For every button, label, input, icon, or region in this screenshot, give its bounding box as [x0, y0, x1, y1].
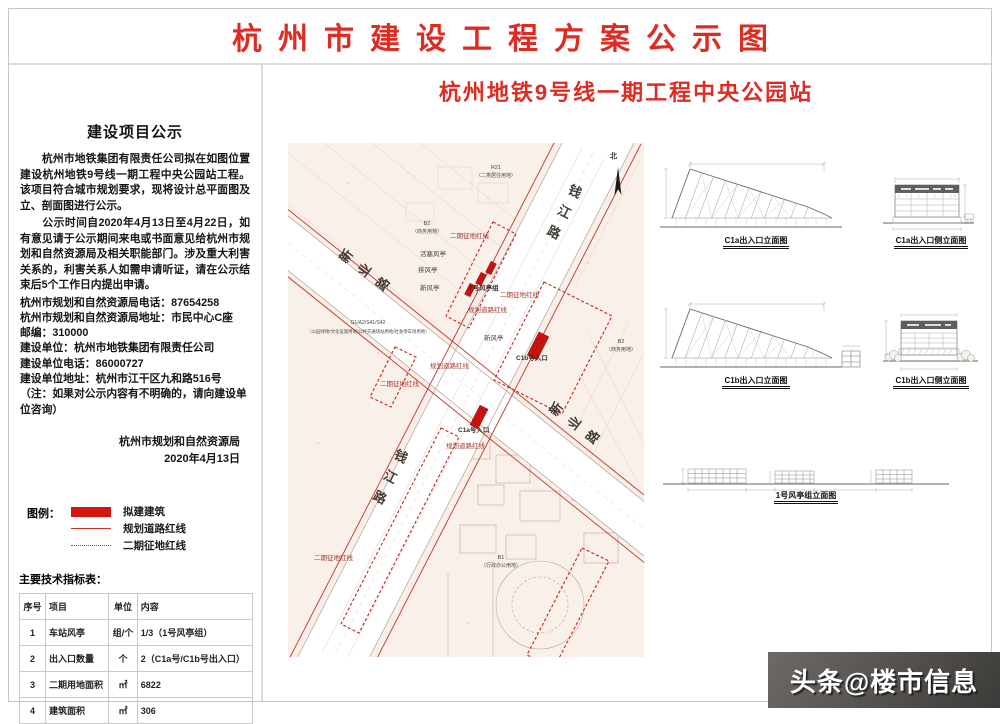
builder-line: 建设单位：杭州市地铁集团有限责任公司	[20, 341, 250, 356]
agency-name: 杭州市规划和自然资源局	[20, 434, 240, 451]
page-title: 杭州市建设工程方案公示图	[216, 14, 784, 58]
annotation-road-redline-1: 规划道路红线	[468, 307, 507, 314]
watermark-text: 头条@楼市信息	[790, 662, 978, 699]
legend-item-phase2-redline: 二期征地红线	[71, 537, 247, 554]
annotation-fresh-air-vent-1: 新风亭	[420, 285, 440, 292]
annotation-phase2-redline-2: 二期征地红线	[500, 292, 539, 299]
table-row: 2 出入口数量 个 2（C1a号/C1b号出入口）	[20, 646, 253, 672]
watermark: 头条@楼市信息	[768, 652, 1000, 708]
elevation-c1a-side	[881, 161, 981, 237]
parcel-label-b2a: B2	[412, 221, 442, 227]
notice-paragraph-1: 杭州市地铁集团有限责任公司拟在如图位置建设杭州地铁9号线一期工程中央公园站工程。…	[20, 152, 250, 214]
title-band: 杭州市建设工程方案公示图	[9, 9, 991, 65]
parcel-label-b2a-use: （商务用地）	[396, 230, 458, 236]
parcel-label-b2b-use: （商务用地）	[590, 348, 652, 354]
parcel-label-b1: B1	[486, 555, 516, 561]
caption-c1a-front: C1a出入口立面图	[656, 235, 856, 246]
parcel-label-g1-codes: G1/A2/S41/S42	[308, 321, 428, 327]
parcel-label-b2b: B2	[606, 339, 636, 345]
annotation-phase2-redline-3: 二期征地红线	[380, 381, 419, 388]
table-row: 4 建筑面积 ㎡ 306	[20, 698, 253, 724]
elevation-c1a-front	[656, 159, 856, 237]
legend-item-road-redline: 规划道路红线	[71, 520, 247, 537]
builder-address-line: 建设单位地址：杭州市江干区九和路516号	[20, 372, 250, 387]
legend: 图例： 拟建建筑 规划道路红线 二期征地红线	[27, 503, 247, 554]
legend-item-proposed-building: 拟建建筑	[71, 503, 247, 520]
notice-heading: 建设项目公示	[20, 121, 250, 142]
annotation-fresh-air-vent-2: 新风亭	[484, 335, 504, 342]
notice-date: 2020年4月13日	[20, 451, 240, 468]
north-label: 北	[610, 153, 617, 161]
parcel-label-r21-use: （二类居住用地）	[456, 174, 536, 180]
elevation-c1b-side	[881, 301, 981, 377]
notice-paragraph-2: 公示时间自2020年4月13日至4月22日，如有意见请于公示期间来电或书面意见给…	[20, 216, 250, 294]
table-row: 1 车站风亭 组/个 1/3（1号风亭组）	[20, 620, 253, 646]
indicator-table-block: 主要技术指标表： 序号 项目 单位 内容 1 车站风亭 组/个 1/3（1号风亭…	[19, 571, 253, 724]
notice-text-block: 建设项目公示 杭州市地铁集团有限责任公司拟在如图位置建设杭州地铁9号线一期工程中…	[9, 63, 261, 468]
caption-c1a-side: C1a出入口侧立面图	[871, 235, 991, 246]
signature-block: 杭州市规划和自然资源局 2020年4月13日	[20, 434, 250, 468]
annotation-piston-vent: 活塞风亭	[420, 251, 446, 258]
bureau-phone-line: 杭州市规划和自然资源局电话：87654258	[20, 296, 250, 311]
bureau-address-line: 杭州市规划和自然资源局地址：市民中心C座	[20, 311, 250, 326]
annotation-entrance-c1a: C1a号入口	[458, 427, 489, 434]
drawing-sheet: 杭州市建设工程方案公示图 杭州地铁9号线一期工程中央公园站 建设项目公示 杭州市…	[8, 8, 992, 702]
annotation-vent-group-1: 1号风亭组	[469, 285, 499, 292]
proposed-building-swatch	[71, 507, 111, 517]
c1b-side-shape	[883, 313, 978, 371]
postcode-line: 邮编：310000	[20, 326, 250, 341]
annotation-exhaust-vent: 排风亭	[418, 267, 438, 274]
car-icon	[964, 214, 974, 219]
parcel-label-g1-use: （公园绿地/文化设施用地/公共交通场站用地/社会停车场用地）	[276, 330, 461, 335]
note-line: （注：如果对公示内容有不明确的，请向建设单位咨询）	[20, 387, 250, 418]
elevation-c1b-front	[656, 299, 866, 379]
annotation-road-redline-2: 规划道路红线	[430, 363, 469, 370]
site-plan-drawing	[288, 143, 644, 657]
notice-panel: 建设项目公示 杭州市地铁集团有限责任公司拟在如图位置建设杭州地铁9号线一期工程中…	[9, 63, 263, 701]
caption-c1b-side: C1b出入口侧立面图	[871, 375, 991, 386]
road-redline-swatch	[71, 528, 111, 529]
site-plan-map: 新业路 钱江路 新业路 钱江路 R21 （二类居住用地） 二期征地红线 活塞风亭…	[288, 143, 644, 657]
caption-vent-group: 1号风亭组立面图	[661, 490, 951, 501]
indicator-table-title: 主要技术指标表：	[19, 571, 253, 587]
builder-phone-line: 建设单位电话：86000727	[20, 357, 250, 372]
parcel-label-r21: R21	[476, 165, 516, 171]
parcel-label-b1-use: （行政办公用地）	[464, 564, 538, 570]
table-row: 3 二期用地面积 ㎡ 6822	[20, 672, 253, 698]
indicator-table: 序号 项目 单位 内容 1 车站风亭 组/个 1/3（1号风亭组） 2 出入口数…	[19, 593, 253, 724]
caption-c1b-front: C1b出入口立面图	[656, 375, 856, 386]
project-subtitle: 杭州地铁9号线一期工程中央公园站	[261, 75, 991, 107]
kiosk-shape	[842, 346, 860, 367]
phase2-redline-swatch	[71, 545, 111, 546]
annotation-phase2-redline-4: 二期征地红线	[314, 555, 353, 562]
table-header-row: 序号 项目 单位 内容	[20, 594, 253, 620]
annotation-entrance-c1b: C1b号入口	[516, 355, 548, 362]
annotation-road-redline-3: 规划道路红线	[446, 443, 485, 450]
legend-title: 图例：	[27, 505, 60, 521]
vent-group-shape	[663, 469, 949, 492]
